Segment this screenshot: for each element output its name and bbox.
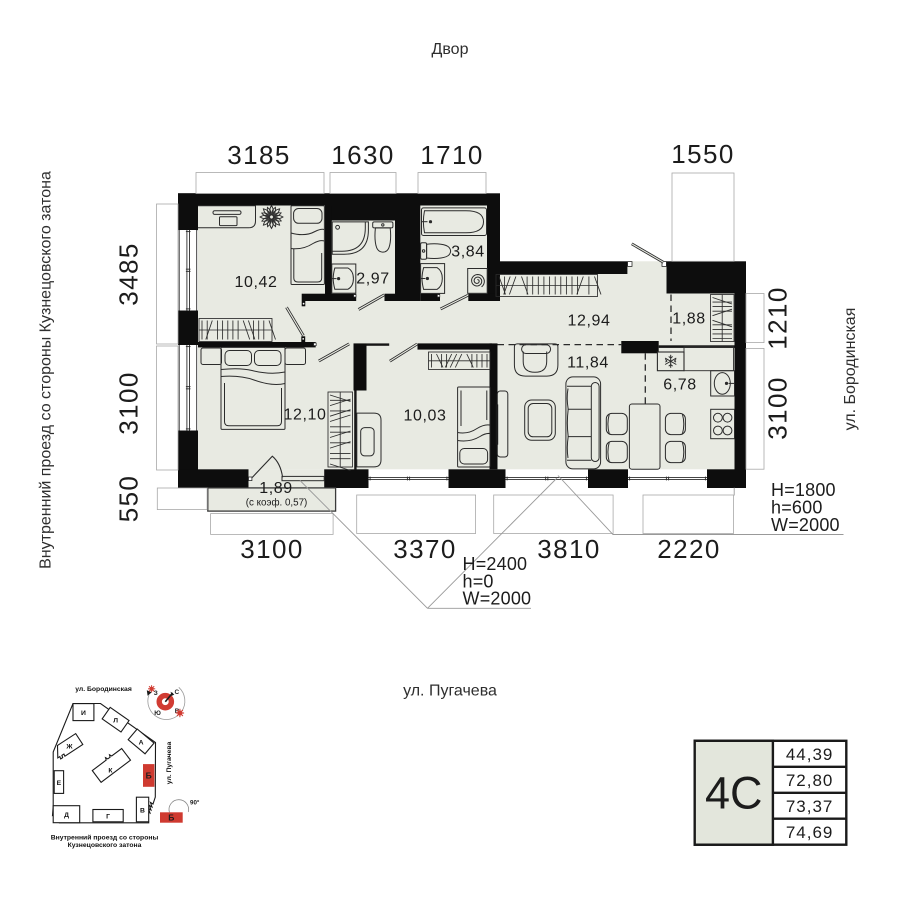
svg-text:72,80: 72,80 <box>786 771 834 790</box>
svg-text:С: С <box>175 689 180 696</box>
svg-text:12,10: 12,10 <box>283 407 326 424</box>
svg-text:74,69: 74,69 <box>786 823 834 842</box>
svg-text:Двор: Двор <box>432 41 469 58</box>
svg-text:4С: 4С <box>705 768 763 819</box>
svg-text:550: 550 <box>114 475 144 523</box>
svg-text:Б: Б <box>146 771 152 781</box>
svg-text:Л: Л <box>113 718 118 725</box>
svg-text:Ж: Ж <box>65 743 73 750</box>
svg-text:3370: 3370 <box>393 534 456 564</box>
svg-text:1,88: 1,88 <box>672 311 706 328</box>
svg-text:ул. Пугачева: ул. Пугачева <box>166 742 173 785</box>
svg-text:В: В <box>140 808 145 815</box>
svg-text:10,42: 10,42 <box>234 274 277 291</box>
svg-text:3185: 3185 <box>227 140 290 170</box>
svg-text:ул. Бородинская: ул. Бородинская <box>75 686 132 693</box>
svg-text:2,97: 2,97 <box>356 271 390 288</box>
svg-text:11,84: 11,84 <box>567 355 609 372</box>
svg-text:З: З <box>154 690 158 697</box>
svg-text:Внутренний проезд со стороны: Внутренний проезд со стороны <box>51 834 159 842</box>
svg-text:12,94: 12,94 <box>567 313 610 330</box>
svg-text:3100: 3100 <box>240 534 303 564</box>
svg-text:ул. Пугачева: ул. Пугачева <box>403 683 497 700</box>
svg-text:1630: 1630 <box>331 140 394 170</box>
svg-text:1710: 1710 <box>420 140 483 170</box>
svg-text:10,03: 10,03 <box>403 408 446 425</box>
svg-text:Внутренний проезд со стороны К: Внутренний проезд со стороны Кузнецовско… <box>38 171 55 569</box>
svg-text:3485: 3485 <box>114 242 144 305</box>
svg-text:2220: 2220 <box>657 534 720 564</box>
svg-text:1550: 1550 <box>671 139 734 169</box>
svg-text:Д: Д <box>64 812 69 819</box>
svg-text:ул. Бородинская: ул. Бородинская <box>842 308 859 431</box>
svg-text:3100: 3100 <box>114 371 144 434</box>
svg-text:Б: Б <box>168 812 174 822</box>
svg-text:90°: 90° <box>190 800 200 807</box>
svg-text:W=2000: W=2000 <box>771 515 840 535</box>
svg-text:44,39: 44,39 <box>786 745 834 764</box>
svg-text:А: А <box>139 739 144 746</box>
svg-text:Е: Е <box>57 780 62 787</box>
svg-text:(с коэф. 0,57): (с коэф. 0,57) <box>246 498 308 509</box>
svg-text:Ю: Ю <box>154 710 161 717</box>
svg-text:И: И <box>81 710 86 717</box>
svg-text:1210: 1210 <box>763 286 793 349</box>
svg-text:3,84: 3,84 <box>451 244 485 261</box>
svg-text:1,89: 1,89 <box>259 480 293 497</box>
svg-text:3810: 3810 <box>537 534 600 564</box>
svg-text:3100: 3100 <box>763 376 793 439</box>
svg-text:73,37: 73,37 <box>786 797 834 816</box>
svg-text:Г: Г <box>106 814 110 821</box>
svg-text:6,78: 6,78 <box>663 377 697 394</box>
svg-text:Кузнецовского затона: Кузнецовского затона <box>68 842 142 849</box>
svg-text:W=2000: W=2000 <box>463 589 532 609</box>
